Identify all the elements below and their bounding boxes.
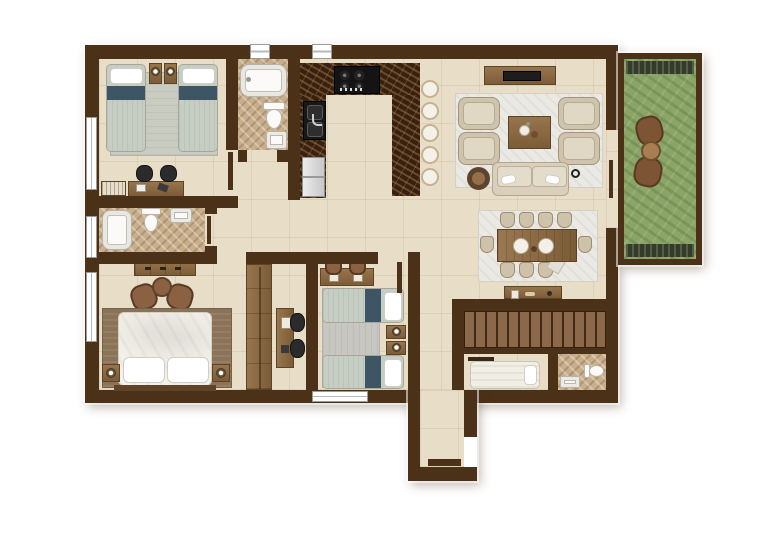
left-wall-window-2 [86,216,97,258]
twin-bed-right [178,64,218,152]
door-leaf-ensuite [207,216,211,244]
wall-bedroom-bathroom [226,59,238,150]
decor-item-floor [571,169,580,178]
planter-strip-top [626,61,694,74]
corridor-floor [420,390,464,467]
bed-blanket-accent [365,356,381,388]
floor-plan-canvas [0,0,768,543]
sideboard [504,286,562,299]
planter-strip-bottom [626,244,694,257]
armchair [558,97,600,130]
stairs-left-wall [452,299,464,390]
decor-item [531,246,537,252]
twin-bed-lower [322,355,404,389]
pillow [384,359,402,387]
bed-blanket-accent [107,86,145,100]
bathtub-vertical [102,210,132,250]
sofa [492,162,569,196]
bed-blanket-accent [365,289,381,322]
table-lamp [392,327,401,336]
bed-duvet [323,356,365,388]
wall-middle-bedroom-top [318,252,378,264]
master-pillow [123,357,165,383]
bar-stool [421,80,439,98]
cooktop-knobs [340,88,362,91]
washbasin [266,131,287,149]
wall-wardrobe-top [246,252,306,264]
twin-bed-left [106,64,146,152]
top-wall-window-1 [250,44,270,59]
dining-chair [500,212,515,228]
wardrobe-handle-line [259,267,261,389]
armchair-cushion [463,102,495,125]
bed-duvet [179,100,217,152]
bottom-wall-window [312,391,368,402]
washbasin [560,376,580,388]
place-setting-plate [513,238,529,254]
stair-treads [464,311,606,348]
bar-stool [421,146,439,164]
wall-ensuite-bottom [99,252,217,264]
dining-chair [480,236,494,253]
refrigerator-door-split [303,176,324,178]
top-wall-window-2 [312,44,332,59]
table-lamp [216,368,226,378]
bed-duvet [107,100,145,152]
wardrobe [246,264,272,390]
kitchen-sink [303,101,326,140]
stairs-top-wall [452,299,606,311]
wall-bedroom-bottom [99,196,238,208]
dining-chair [519,262,534,278]
desk-chair [290,339,305,358]
kitchen-breakfast-bar [392,95,420,196]
wall-master-middle [306,252,318,390]
desk-items [329,274,339,282]
twin-bed-upper [322,288,404,323]
entry-door-opening [464,437,477,467]
wall-ensuite-right-seg [205,196,217,214]
place-setting-plate [538,238,554,254]
storage-bench [101,181,126,196]
bar-stool [421,168,439,186]
sideboard-decor [525,292,535,296]
toilet-bowl [589,365,604,377]
round-table [152,277,172,297]
coffee-table [508,116,551,149]
master-pillow [167,357,209,383]
pillow [384,292,402,321]
desk-items [353,274,363,282]
bed-blanket-accent [179,86,217,100]
bar-stool [421,124,439,142]
armchair [458,97,500,130]
wall-bathroom-bottom-seg [277,150,288,162]
table-lamp [166,67,175,76]
left-wall-window-3 [86,272,97,342]
dining-chair [557,212,572,228]
bar-stool [421,102,439,120]
dining-chair [538,212,553,228]
vanity-stool [136,165,153,182]
dining-table [497,229,577,262]
dresser-handles [145,267,187,270]
round-outdoor-table [641,141,661,161]
wall-bathroom-kitchen [288,59,300,200]
decor-bowl [519,125,530,136]
balcony-lawn [624,59,696,259]
maid-bath-wall [548,354,558,390]
table-lamp [151,67,160,76]
washbasin [170,208,192,223]
armchair-cushion [563,137,595,160]
door-leaf-bedroom [228,152,233,190]
sink-faucet [312,114,322,126]
sideboard-decor [547,291,552,296]
balcony-sliding-door [609,160,613,198]
pillow [524,365,537,385]
armchair [558,132,600,165]
armchair [458,132,500,165]
pillow [110,68,143,84]
tv-console [484,66,556,85]
refrigerator [302,157,325,197]
door-leaf-middle-bedroom [397,262,402,293]
wall-middle-bedroom-right [408,252,420,390]
decor-item [526,122,530,126]
television [503,71,541,81]
armchair-cushion [563,102,595,125]
table-lamp [392,343,401,352]
left-wall-window-1 [86,117,97,190]
armchair-cushion [463,137,495,160]
pillow [182,68,215,84]
desk-chair [290,313,305,332]
headboard [114,385,216,391]
desk-items [281,345,289,353]
entry-door-mat [428,459,461,466]
decor-item [531,131,538,138]
dining-chair [519,212,534,228]
bed-duvet [323,289,365,322]
table-lamp [106,368,116,378]
dining-chair [500,262,515,278]
maid-single-bed [470,361,540,389]
sideboard-decor [511,290,519,299]
bathtub-drain [246,77,251,82]
dining-chair [578,236,592,253]
vanity-stool [160,165,177,182]
wall-bathroom-bottom-seg [238,150,247,162]
round-side-table [467,167,490,190]
desk-items [136,184,146,192]
